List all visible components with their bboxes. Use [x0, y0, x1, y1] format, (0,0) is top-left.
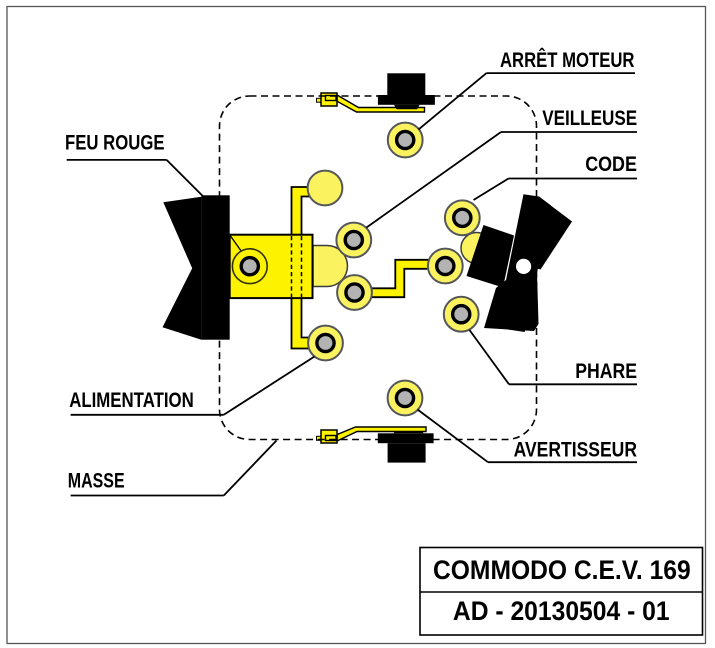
- svg-text:PHARE: PHARE: [575, 360, 637, 383]
- svg-text:ARRÊT MOTEUR: ARRÊT MOTEUR: [500, 48, 635, 72]
- svg-text:CODE: CODE: [585, 153, 637, 176]
- svg-text:MASSE: MASSE: [68, 470, 125, 493]
- svg-text:AD - 20130504 - 01: AD - 20130504 - 01: [453, 596, 670, 626]
- svg-text:VEILLEUSE: VEILLEUSE: [542, 107, 637, 130]
- svg-text:FEU ROUGE: FEU ROUGE: [65, 132, 165, 155]
- svg-text:AVERTISSEUR: AVERTISSEUR: [514, 438, 637, 461]
- svg-text:ALIMENTATION: ALIMENTATION: [69, 389, 194, 412]
- svg-text:COMMODO C.E.V. 169: COMMODO C.E.V. 169: [433, 555, 691, 585]
